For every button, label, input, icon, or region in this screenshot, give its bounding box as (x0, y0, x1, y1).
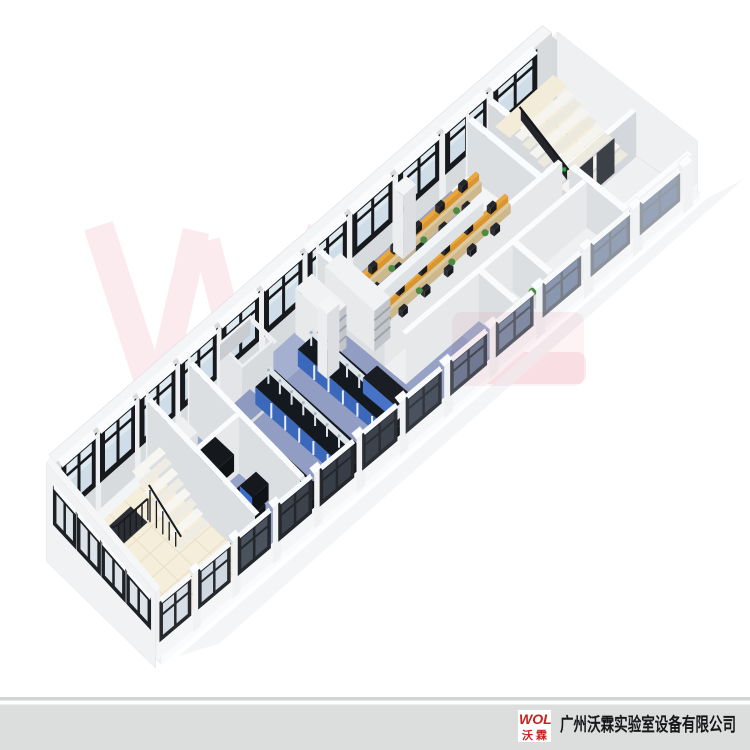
svg-text:WOL: WOL (519, 711, 552, 727)
svg-text:广州沃霖实验室设备有限公司: 广州沃霖实验室设备有限公司 (560, 714, 736, 736)
svg-text:沃霖: 沃霖 (522, 728, 550, 742)
